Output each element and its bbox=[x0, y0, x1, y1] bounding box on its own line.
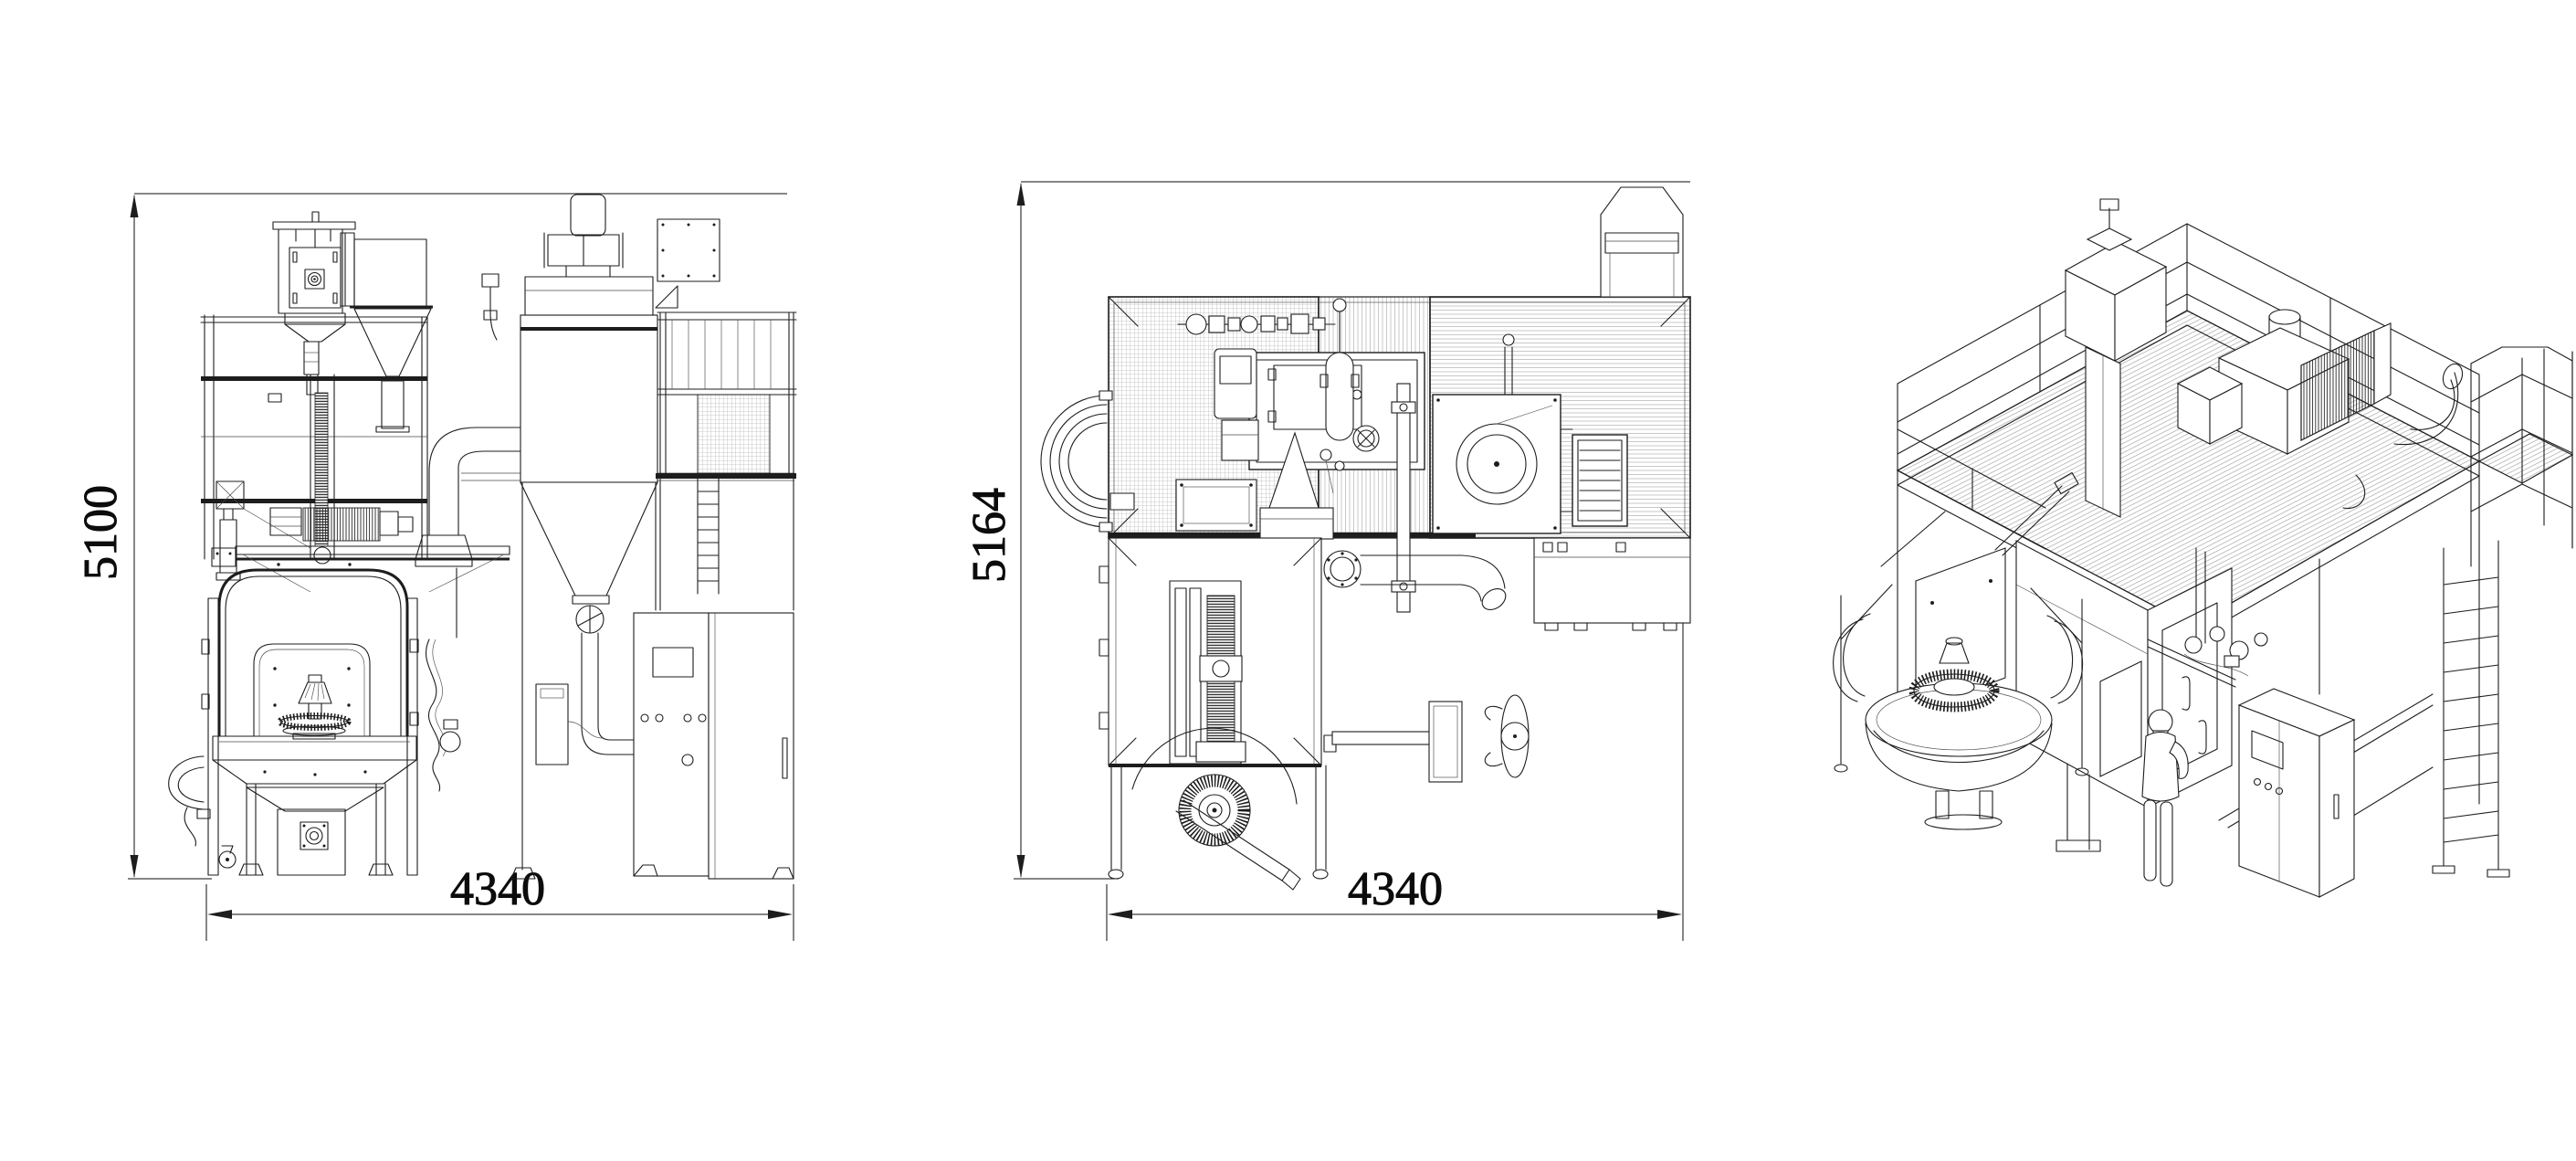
plan-width-label: 4340 bbox=[1348, 863, 1443, 915]
iso-control-cabinet bbox=[2239, 689, 2354, 897]
plan-service-unit bbox=[1534, 538, 1690, 630]
plan-height-label: 5164 bbox=[963, 488, 1015, 583]
front-height-label: 5100 bbox=[75, 485, 127, 580]
drawing-canvas: 5100 4340 bbox=[0, 0, 2576, 1161]
front-width-label: 4340 bbox=[450, 863, 545, 915]
drawing-sheet: 5100 4340 bbox=[0, 0, 2576, 1161]
plan-blower-fan bbox=[1433, 395, 1572, 533]
plan-chimney bbox=[1601, 187, 1683, 297]
plan-louver-panel bbox=[1572, 435, 1627, 526]
iso-operator-head bbox=[2149, 710, 2172, 734]
control-cabinets bbox=[634, 613, 794, 879]
